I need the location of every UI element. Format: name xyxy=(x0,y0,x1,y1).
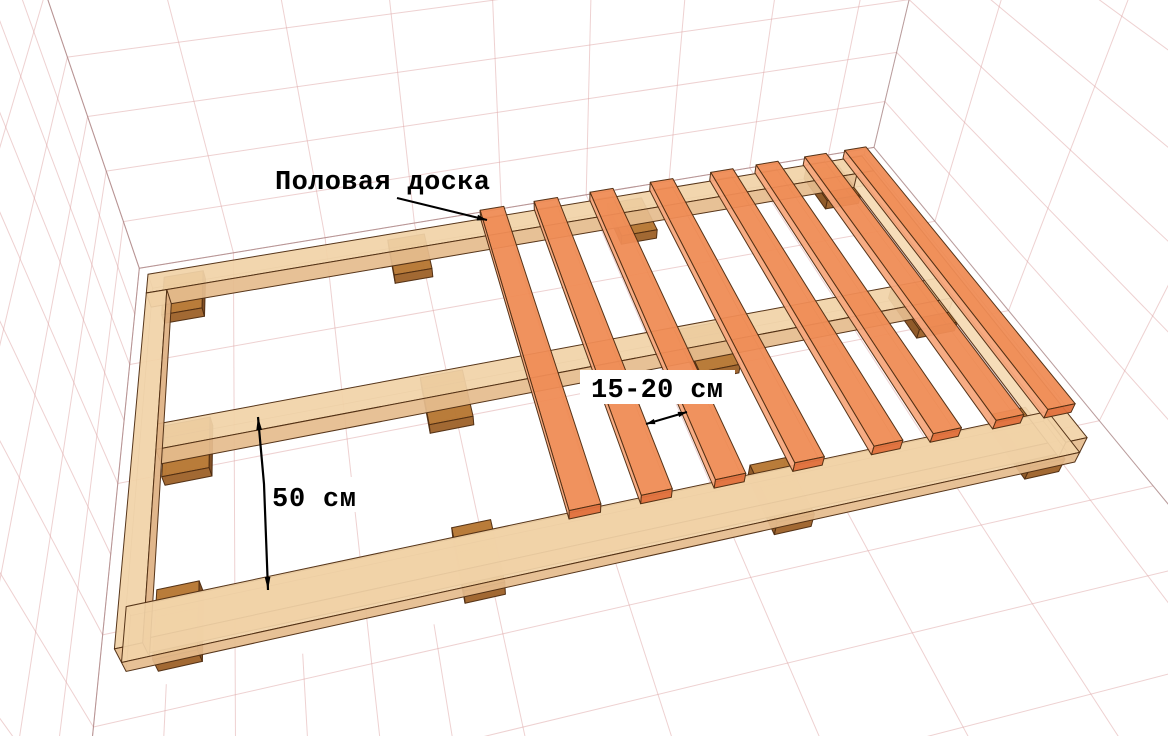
svg-text:50 см: 50 см xyxy=(272,485,356,515)
svg-text:15-20 см: 15-20 см xyxy=(591,376,723,406)
svg-text:Половая доска: Половая доска xyxy=(275,168,490,198)
